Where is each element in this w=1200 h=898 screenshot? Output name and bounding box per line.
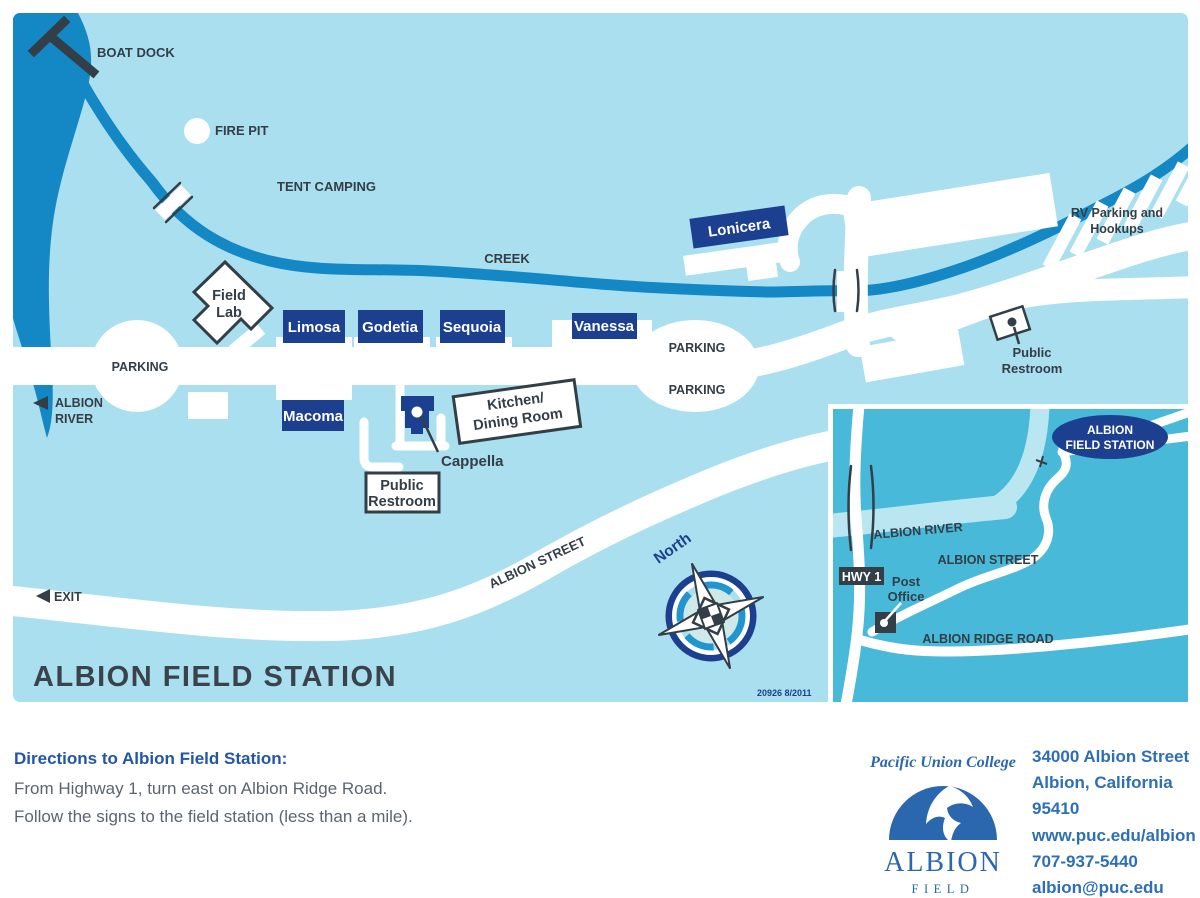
cappella-label: Cappella xyxy=(441,453,504,470)
small-building-pad xyxy=(188,392,228,419)
contact-block: 34000 Albion Street Albion, California 9… xyxy=(1032,744,1196,898)
restroom-east-label-line2: Restroom xyxy=(1002,361,1063,376)
fire-pit-icon xyxy=(184,118,210,144)
cappella-marker-dot xyxy=(412,407,423,418)
directions-line2: Follow the signs to the field station (l… xyxy=(14,807,413,827)
logo-field-station-wordmark: FIELD STATION xyxy=(863,882,1023,898)
vanessa-label: Vanessa xyxy=(574,318,635,335)
macoma-label: Macoma xyxy=(283,408,344,425)
rv-parking-label-line1: RV Parking and xyxy=(1071,206,1163,220)
sequoia-label: Sequoia xyxy=(443,319,502,336)
creek-label: CREEK xyxy=(484,251,530,266)
logo-college-name: Pacific Union College xyxy=(863,754,1023,772)
tent-camping-label: TENT CAMPING xyxy=(277,179,376,194)
address-line3: 95410 xyxy=(1032,796,1196,822)
map-title: ALBION FIELD STATION xyxy=(33,661,397,693)
puc-logo: Pacific Union College ALBION FIELD STATI… xyxy=(863,754,1023,898)
address-line1: 34000 Albion Street xyxy=(1032,744,1196,770)
field-lab-label-line1: Field xyxy=(212,288,246,304)
inset-ridge-road-label: ALBION RIDGE ROAD xyxy=(922,632,1053,646)
exit-label: EXIT xyxy=(54,590,82,604)
logo-albion-wordmark: ALBION xyxy=(863,847,1023,879)
hwy1-label: HWY 1 xyxy=(842,570,881,584)
inset-albion-street-label: ALBION STREET xyxy=(938,553,1039,567)
email-text: albion@puc.edu xyxy=(1032,875,1196,898)
albion-river-label-line1: ALBION xyxy=(55,396,103,410)
parking-label-east-1: PARKING xyxy=(669,341,726,355)
inset-station-label-line1: ALBION xyxy=(1087,423,1133,437)
parking-label-east-2: PARKING xyxy=(669,383,726,397)
albion-field-station-flyer: Field Lab Limosa Godetia Sequoia Vanessa… xyxy=(0,0,1200,898)
restroom-east-label-line1: Public xyxy=(1012,345,1051,360)
directions-heading: Directions to Albion Field Station: xyxy=(14,749,287,769)
post-office-label-line1: Post xyxy=(892,574,921,589)
godetia-label: Godetia xyxy=(362,319,418,336)
directions-line1: From Highway 1, turn east on Albion Ridg… xyxy=(14,779,387,799)
rv-parking-label-line2: Hookups xyxy=(1090,222,1144,236)
field-lab-label-line2: Lab xyxy=(216,305,242,321)
address-line2: Albion, California xyxy=(1032,770,1196,796)
post-office-label-line2: Office xyxy=(888,589,925,604)
fire-pit-label: FIRE PIT xyxy=(215,123,269,138)
limosa-label: Limosa xyxy=(288,319,341,336)
phone-text: 707-937-5440 xyxy=(1032,849,1196,875)
albion-river-label-line2: RIVER xyxy=(55,412,93,426)
logo-dome-icon xyxy=(863,774,1023,847)
macoma-pad xyxy=(276,384,352,400)
inset-station-label-line2: FIELD STATION xyxy=(1066,438,1155,452)
creek-bridge-east-icon xyxy=(834,270,859,312)
restroom-west-label-line1: Public xyxy=(380,478,424,494)
boat-dock-label: BOAT DOCK xyxy=(97,45,175,60)
site-map: Field Lab Limosa Godetia Sequoia Vanessa… xyxy=(0,0,1200,720)
restroom-west-label-line2: Restroom xyxy=(368,494,436,510)
inset-station-ellipse xyxy=(1052,415,1168,459)
website-text: www.puc.edu/albion xyxy=(1032,823,1196,849)
inset-map: ALBION FIELD STATION HWY 1 Post Office A… xyxy=(828,404,1200,705)
parking-label-west: PARKING xyxy=(112,360,169,374)
map-code: 20926 8/2011 xyxy=(757,688,812,698)
